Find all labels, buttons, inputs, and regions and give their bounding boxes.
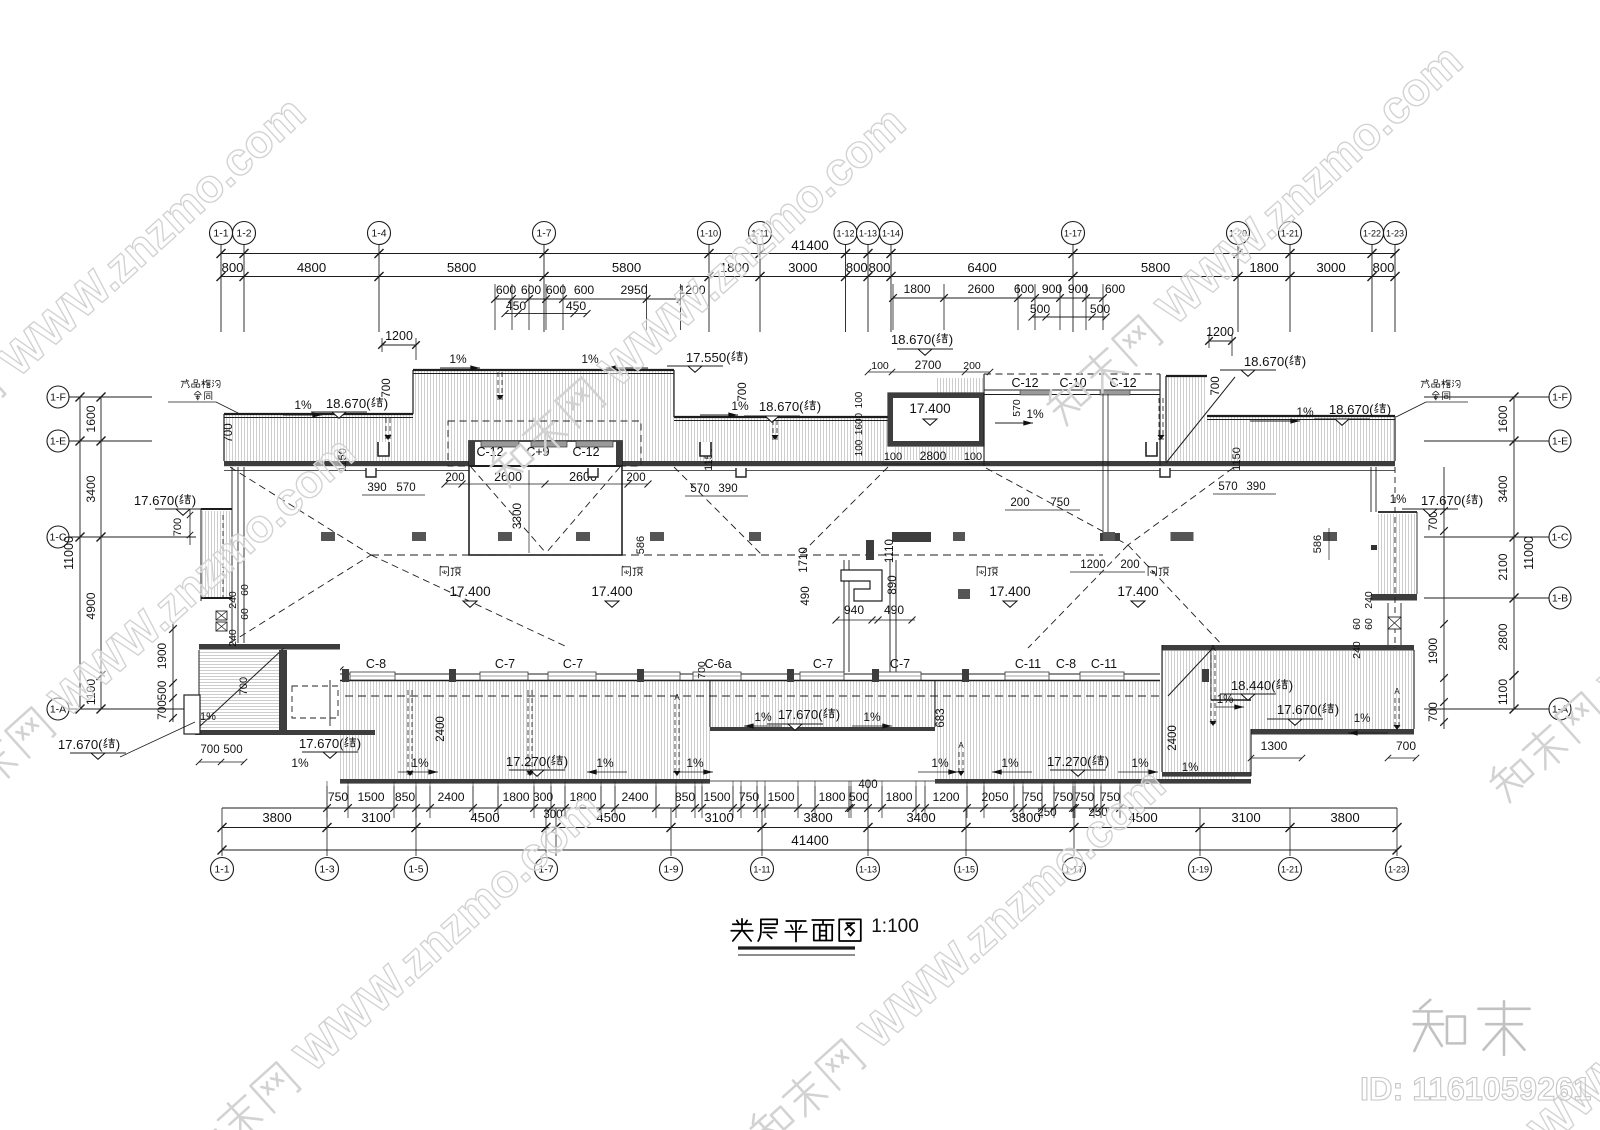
svg-text:600: 600 xyxy=(1014,282,1035,296)
svg-text:500: 500 xyxy=(1030,302,1051,316)
svg-text:17.670(: 17.670( xyxy=(1421,493,1466,508)
svg-text:1600: 1600 xyxy=(854,412,865,435)
svg-text:1150: 1150 xyxy=(1231,447,1243,471)
svg-text:18.670(: 18.670( xyxy=(1244,354,1289,369)
svg-text:17.670(: 17.670( xyxy=(299,736,344,751)
svg-text:3800: 3800 xyxy=(1011,810,1040,825)
svg-text:3400: 3400 xyxy=(906,810,935,825)
svg-text:17.400: 17.400 xyxy=(591,584,632,599)
svg-text:2400: 2400 xyxy=(435,716,447,742)
svg-text:700: 700 xyxy=(696,661,708,679)
svg-text:1-F: 1-F xyxy=(1552,391,1568,403)
svg-text:1200: 1200 xyxy=(1206,325,1234,339)
svg-text:18.670(: 18.670( xyxy=(1329,402,1374,417)
svg-text:1%: 1% xyxy=(294,398,312,412)
svg-text:200: 200 xyxy=(1010,497,1029,509)
svg-text:5800: 5800 xyxy=(447,260,476,275)
svg-text:C-7: C-7 xyxy=(495,657,515,671)
svg-text:750: 750 xyxy=(1053,790,1074,804)
svg-text:): ) xyxy=(744,350,748,365)
svg-text:100: 100 xyxy=(884,451,902,463)
svg-text:): ) xyxy=(1387,402,1391,417)
svg-text:850: 850 xyxy=(675,790,696,804)
svg-text:700: 700 xyxy=(1426,702,1440,722)
svg-text:WWW.znzmo.com: WWW.znzmo.com xyxy=(589,96,914,396)
svg-text:1-1: 1-1 xyxy=(213,227,228,239)
svg-text:750: 750 xyxy=(739,790,760,804)
svg-text:WWW.znzmo.com: WWW.znzmo.com xyxy=(0,86,315,386)
svg-text:): ) xyxy=(192,493,196,508)
svg-text:390: 390 xyxy=(367,482,386,494)
svg-text:600: 600 xyxy=(496,283,517,297)
svg-text:570: 570 xyxy=(396,482,415,494)
svg-text:18.440(: 18.440( xyxy=(1231,678,1276,693)
svg-text:1%: 1% xyxy=(754,710,772,724)
svg-text:): ) xyxy=(817,399,821,414)
svg-text:1-7: 1-7 xyxy=(536,227,551,239)
svg-text:C-7: C-7 xyxy=(890,657,910,671)
svg-text:1800: 1800 xyxy=(903,282,930,296)
svg-text:1%: 1% xyxy=(686,756,704,770)
svg-text:100: 100 xyxy=(854,391,865,408)
svg-text:200: 200 xyxy=(445,472,464,484)
svg-text:3300: 3300 xyxy=(510,502,524,529)
svg-text:940: 940 xyxy=(844,603,864,617)
svg-text:570: 570 xyxy=(1011,399,1023,417)
svg-text:1200: 1200 xyxy=(385,329,413,343)
svg-text:A: A xyxy=(958,741,964,750)
svg-text:60: 60 xyxy=(239,584,251,596)
svg-text:17.400: 17.400 xyxy=(1117,584,1158,599)
svg-text:700: 700 xyxy=(1396,739,1416,753)
svg-text:390: 390 xyxy=(1246,481,1265,493)
svg-text:A: A xyxy=(1394,687,1400,696)
svg-text:3800: 3800 xyxy=(803,810,832,825)
svg-text:570: 570 xyxy=(1218,481,1237,493)
svg-text:800: 800 xyxy=(221,260,243,275)
svg-text:1100: 1100 xyxy=(1496,679,1510,705)
svg-text:240: 240 xyxy=(227,629,239,647)
svg-text:): ) xyxy=(1479,493,1483,508)
svg-text:1-22: 1-22 xyxy=(1363,228,1381,238)
svg-text:2400: 2400 xyxy=(1167,725,1179,751)
svg-text:18.670(: 18.670( xyxy=(759,399,804,414)
svg-text:1-3: 1-3 xyxy=(319,863,334,875)
svg-text:1-15: 1-15 xyxy=(957,864,975,874)
svg-text:570: 570 xyxy=(690,483,709,495)
svg-text:): ) xyxy=(1105,754,1109,769)
svg-text:): ) xyxy=(564,754,568,769)
svg-text:700: 700 xyxy=(238,677,250,695)
svg-text:17.270(: 17.270( xyxy=(506,754,551,769)
svg-text:2700: 2700 xyxy=(915,358,942,372)
svg-text:3000: 3000 xyxy=(1316,260,1345,275)
svg-text:1-5: 1-5 xyxy=(408,863,423,875)
svg-text:450: 450 xyxy=(566,299,587,313)
svg-text:500: 500 xyxy=(155,680,169,700)
svg-text:1%: 1% xyxy=(1001,756,1019,770)
svg-text:1-2: 1-2 xyxy=(236,227,251,239)
svg-text:C-11: C-11 xyxy=(1091,657,1117,671)
svg-text:3800: 3800 xyxy=(262,810,291,825)
svg-text:850: 850 xyxy=(395,790,416,804)
svg-text:1%: 1% xyxy=(931,756,949,770)
svg-text:700: 700 xyxy=(737,382,749,401)
svg-text:WWW.znzmo.com: WWW.znzmo.com xyxy=(1589,411,1600,711)
svg-text:C-12: C-12 xyxy=(572,445,599,459)
svg-text:1-E: 1-E xyxy=(50,435,66,447)
svg-text:490: 490 xyxy=(800,586,812,605)
svg-text:ID: 1161059261: ID: 1161059261 xyxy=(1360,1071,1591,1107)
svg-text:800: 800 xyxy=(1372,260,1394,275)
svg-text:5800: 5800 xyxy=(1141,260,1170,275)
svg-text:586: 586 xyxy=(1312,535,1324,553)
svg-text:17.400: 17.400 xyxy=(449,584,490,599)
svg-text:A: A xyxy=(674,693,680,702)
svg-text:1800: 1800 xyxy=(885,790,912,804)
svg-text:700: 700 xyxy=(223,423,235,442)
svg-text:1-B: 1-B xyxy=(1552,592,1568,604)
svg-text:1800: 1800 xyxy=(818,790,845,804)
svg-text:11000: 11000 xyxy=(62,536,76,570)
svg-text:): ) xyxy=(357,736,361,751)
svg-text:1%: 1% xyxy=(1026,407,1044,421)
svg-text:1-12: 1-12 xyxy=(836,228,854,238)
svg-text:1-23: 1-23 xyxy=(1386,228,1404,238)
svg-text:1-1: 1-1 xyxy=(214,863,229,875)
svg-text:1600: 1600 xyxy=(1496,405,1510,432)
svg-text:C-7: C-7 xyxy=(563,657,583,671)
svg-text:1-17: 1-17 xyxy=(1064,228,1082,238)
svg-text:500: 500 xyxy=(1090,302,1111,316)
svg-text:1500: 1500 xyxy=(767,790,794,804)
svg-text:100: 100 xyxy=(854,439,865,456)
svg-text:18.670(: 18.670( xyxy=(326,396,371,411)
svg-text:41400: 41400 xyxy=(791,833,829,848)
svg-text:1710: 1710 xyxy=(798,547,810,573)
svg-text:3100: 3100 xyxy=(1231,810,1260,825)
svg-text:700: 700 xyxy=(172,518,184,536)
svg-text:700: 700 xyxy=(1210,376,1222,395)
svg-text:1-14: 1-14 xyxy=(882,228,900,238)
svg-text:1-E: 1-E xyxy=(1552,435,1568,447)
svg-text:1-9: 1-9 xyxy=(663,863,678,875)
svg-text:1-4: 1-4 xyxy=(371,227,386,239)
svg-text:1800: 1800 xyxy=(502,790,529,804)
svg-text:200: 200 xyxy=(963,360,981,372)
svg-text:4800: 4800 xyxy=(297,260,326,275)
svg-text:890: 890 xyxy=(887,575,899,594)
svg-text:600: 600 xyxy=(546,283,567,297)
svg-text:): ) xyxy=(116,737,120,752)
svg-text:2050: 2050 xyxy=(981,790,1008,804)
svg-text:WWW.znzmo.com: WWW.znzmo.com xyxy=(284,781,609,1081)
svg-text:1-13: 1-13 xyxy=(859,228,877,238)
svg-text:3400: 3400 xyxy=(84,475,98,502)
svg-text:): ) xyxy=(1335,702,1339,717)
svg-text:1%: 1% xyxy=(1182,762,1199,774)
svg-text:3100: 3100 xyxy=(361,810,390,825)
svg-text:100: 100 xyxy=(871,360,889,372)
svg-text:2800: 2800 xyxy=(920,449,947,463)
svg-text:17.670(: 17.670( xyxy=(58,737,103,752)
svg-text:390: 390 xyxy=(718,483,737,495)
svg-text:2100: 2100 xyxy=(1496,553,1510,580)
svg-text:700: 700 xyxy=(381,378,393,397)
svg-text:1500: 1500 xyxy=(703,790,730,804)
svg-text:586: 586 xyxy=(635,536,647,554)
svg-text:683: 683 xyxy=(935,708,947,727)
svg-text:1%: 1% xyxy=(1390,494,1407,506)
svg-text:17.270(: 17.270( xyxy=(1047,754,1092,769)
svg-text:240: 240 xyxy=(1363,591,1375,609)
svg-text:60: 60 xyxy=(239,608,251,620)
svg-text:17.400: 17.400 xyxy=(989,584,1030,599)
svg-text:500: 500 xyxy=(223,744,242,756)
svg-text:1-F: 1-F xyxy=(50,391,66,403)
svg-text:200: 200 xyxy=(1120,559,1139,571)
svg-text:900: 900 xyxy=(1042,282,1063,296)
svg-text:1900: 1900 xyxy=(1426,637,1440,664)
svg-text:C-12: C-12 xyxy=(1011,376,1038,390)
svg-text:1300: 1300 xyxy=(1261,739,1288,753)
svg-text:1%: 1% xyxy=(1354,713,1371,725)
svg-text:750: 750 xyxy=(1050,497,1069,509)
svg-text:2950: 2950 xyxy=(620,283,647,297)
svg-text:240: 240 xyxy=(1351,641,1363,659)
svg-text:800: 800 xyxy=(846,260,868,275)
svg-text:1%: 1% xyxy=(291,756,309,770)
svg-text:500: 500 xyxy=(849,790,870,804)
svg-text:900: 900 xyxy=(1068,282,1089,296)
svg-text:): ) xyxy=(1289,678,1293,693)
svg-text:17.400: 17.400 xyxy=(909,401,950,416)
svg-text:3000: 3000 xyxy=(788,260,817,275)
svg-text:1%: 1% xyxy=(1296,405,1314,419)
svg-text:1%: 1% xyxy=(411,756,429,770)
svg-text:4900: 4900 xyxy=(84,592,98,619)
svg-text:6400: 6400 xyxy=(967,260,996,275)
svg-text:700: 700 xyxy=(200,744,219,756)
svg-text:): ) xyxy=(1302,354,1306,369)
svg-text:700: 700 xyxy=(155,700,169,720)
svg-text:240: 240 xyxy=(227,591,239,609)
svg-text:C-7: C-7 xyxy=(813,657,833,671)
svg-text:3100: 3100 xyxy=(704,810,733,825)
svg-text:17.670(: 17.670( xyxy=(134,493,179,508)
svg-text:C-11: C-11 xyxy=(1015,657,1041,671)
svg-text:1600: 1600 xyxy=(84,405,98,432)
svg-text:1-21: 1-21 xyxy=(1281,864,1299,874)
svg-text:1%: 1% xyxy=(596,756,614,770)
svg-text:60: 60 xyxy=(1351,618,1363,630)
svg-text:1200: 1200 xyxy=(1080,559,1106,571)
svg-text:C-8: C-8 xyxy=(1056,657,1076,671)
svg-text:4500: 4500 xyxy=(470,810,499,825)
svg-text:C-6a: C-6a xyxy=(704,657,731,671)
svg-text:600: 600 xyxy=(1105,282,1126,296)
svg-text:C-8: C-8 xyxy=(366,657,386,671)
svg-text:1200: 1200 xyxy=(932,790,959,804)
svg-text:2400: 2400 xyxy=(621,790,648,804)
svg-text:800: 800 xyxy=(868,260,890,275)
svg-text:11000: 11000 xyxy=(1522,536,1536,570)
svg-text:): ) xyxy=(949,332,953,347)
svg-text:490: 490 xyxy=(884,603,904,617)
svg-text:1:100: 1:100 xyxy=(871,916,919,937)
svg-text:2800: 2800 xyxy=(1496,623,1510,650)
svg-text:3400: 3400 xyxy=(1496,475,1510,502)
svg-text:17.670(: 17.670( xyxy=(1277,702,1322,717)
svg-text:1500: 1500 xyxy=(357,790,384,804)
svg-text:18.670(: 18.670( xyxy=(891,332,936,347)
svg-text:1%: 1% xyxy=(200,711,216,723)
svg-text:1-23: 1-23 xyxy=(1388,864,1406,874)
svg-text:600: 600 xyxy=(574,283,595,297)
svg-text:A: A xyxy=(1210,644,1216,653)
svg-text:1-11: 1-11 xyxy=(753,864,770,874)
svg-text:17.670(: 17.670( xyxy=(778,707,823,722)
svg-text:3800: 3800 xyxy=(1330,810,1359,825)
svg-text:1110: 1110 xyxy=(884,539,896,563)
svg-text:1%: 1% xyxy=(863,710,881,724)
svg-text:2600: 2600 xyxy=(967,282,994,296)
svg-text:17.550(: 17.550( xyxy=(686,350,731,365)
svg-text:): ) xyxy=(836,707,840,722)
svg-text:1%: 1% xyxy=(1217,694,1234,706)
svg-text:450: 450 xyxy=(506,299,527,313)
svg-text:750: 750 xyxy=(1023,790,1044,804)
svg-text:1-C: 1-C xyxy=(1552,531,1569,543)
svg-text:750: 750 xyxy=(328,790,349,804)
svg-text:WWW.znzmo.com: WWW.znzmo.com xyxy=(1146,34,1471,334)
svg-text:1%: 1% xyxy=(449,352,467,366)
svg-text:600: 600 xyxy=(521,283,542,297)
svg-text:2400: 2400 xyxy=(437,790,464,804)
svg-text:60: 60 xyxy=(1363,618,1375,630)
svg-text:1-10: 1-10 xyxy=(700,228,718,238)
svg-text:5800: 5800 xyxy=(612,260,641,275)
svg-text:1-19: 1-19 xyxy=(1191,864,1209,874)
svg-text:100: 100 xyxy=(964,451,982,463)
svg-text:1-13: 1-13 xyxy=(859,864,877,874)
